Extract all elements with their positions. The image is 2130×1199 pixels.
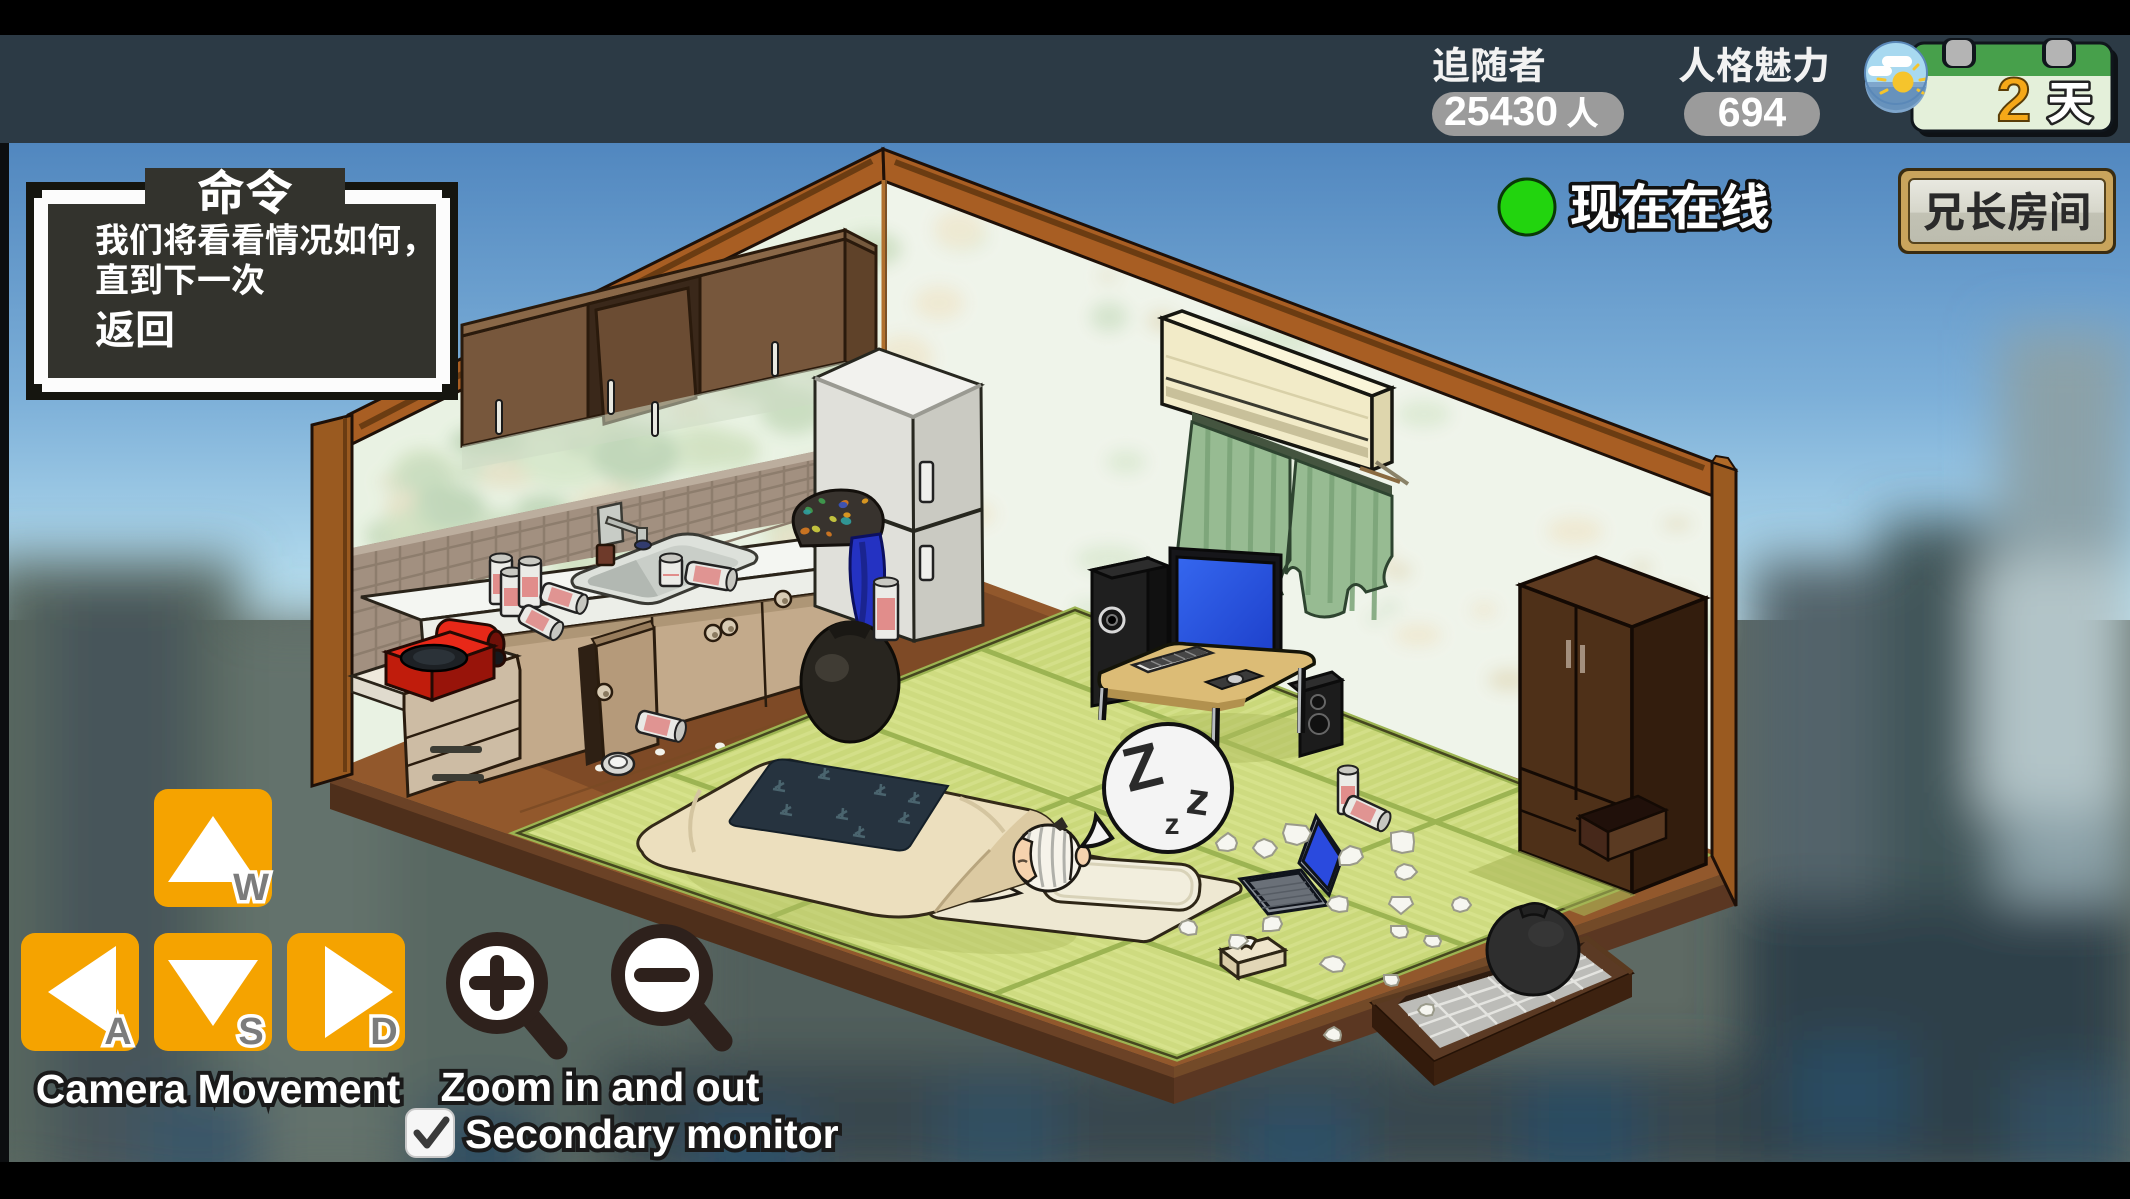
svg-text:z: z: [1165, 808, 1180, 841]
svg-text:D: D: [370, 1011, 397, 1053]
svg-text:A: A: [104, 1011, 131, 1053]
svg-text:694: 694: [1718, 89, 1787, 135]
svg-text:Camera Movement: Camera Movement: [36, 1066, 401, 1112]
svg-text:Secondary monitor: Secondary monitor: [465, 1111, 839, 1157]
svg-text:S: S: [238, 1011, 263, 1053]
svg-text:25430: 25430: [1444, 88, 1558, 134]
svg-text:2: 2: [1997, 66, 2031, 135]
svg-text:Zoom in and out: Zoom in and out: [441, 1064, 760, 1110]
svg-text:W: W: [233, 867, 269, 909]
